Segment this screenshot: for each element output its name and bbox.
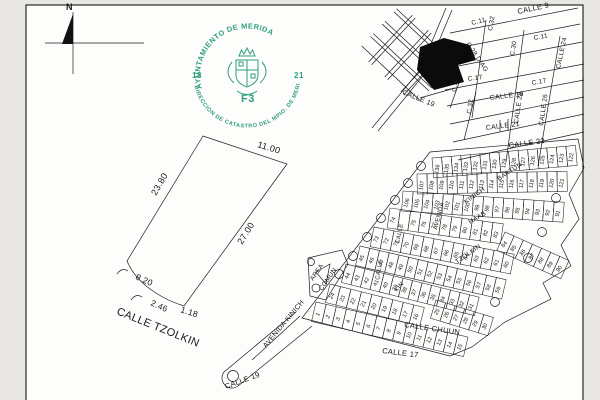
page-border [26, 5, 583, 400]
seal-right-number: 21 [294, 71, 304, 80]
north-label: N [66, 2, 73, 12]
plan-drawing: N AYUNTAMIENTO DE MERIDA DIRECCION DE CA… [0, 0, 600, 400]
seal-left-number: 18 [192, 71, 202, 80]
scanned-cadastral-plan: N AYUNTAMIENTO DE MERIDA DIRECCION DE CA… [0, 0, 600, 400]
seal-code: F3 [241, 93, 255, 105]
